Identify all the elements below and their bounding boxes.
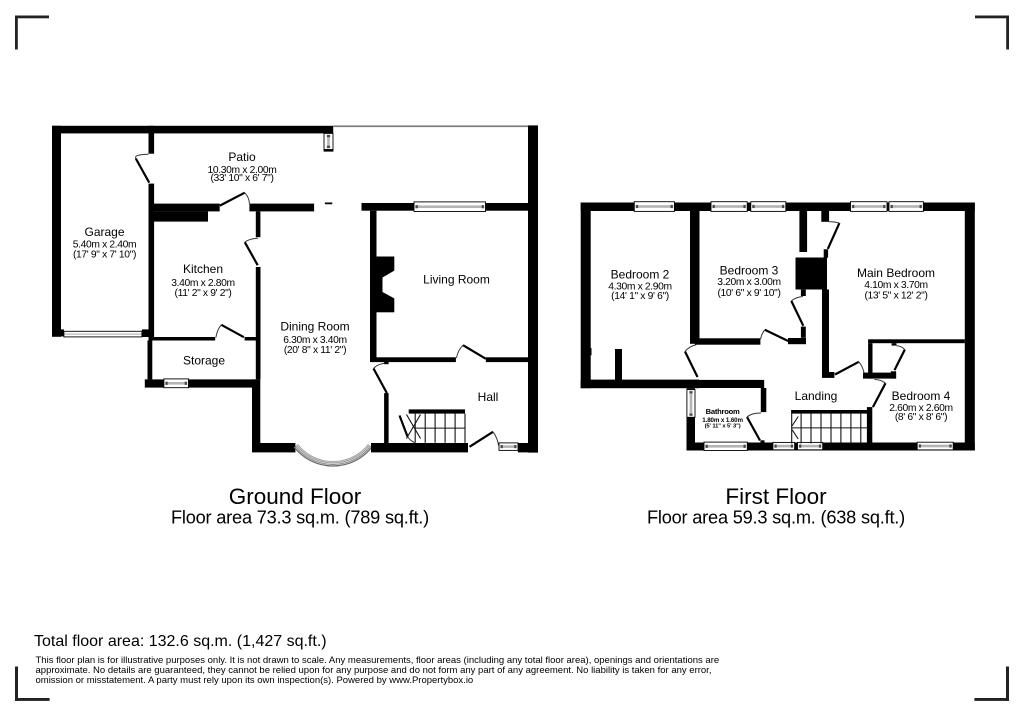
svg-text:(14' 1" x 9' 6"): (14' 1" x 9' 6") [611,291,669,302]
svg-text:(13' 5" x 12' 2"): (13' 5" x 12' 2") [864,290,927,301]
svg-text:(5' 11" x 5' 3"): (5' 11" x 5' 3") [705,423,741,429]
svg-text:(10' 6" x 9' 10"): (10' 6" x 9' 10") [717,288,780,299]
svg-text:Living Room: Living Room [423,273,490,287]
svg-text:Main Bedroom: Main Bedroom [857,266,935,280]
svg-text:Bedroom 4: Bedroom 4 [892,389,951,403]
svg-text:Garage: Garage [84,225,124,239]
svg-text:Bedroom 3: Bedroom 3 [720,264,779,278]
svg-text:Storage: Storage [183,354,225,368]
svg-text:(20' 8" x 11' 2"): (20' 8" x 11' 2") [284,345,346,356]
svg-text:Ground Floor: Ground Floor [229,484,362,509]
svg-text:Floor area 59.3 sq.m. (638 sq.: Floor area 59.3 sq.m. (638 sq.ft.) [647,508,905,528]
svg-text:Hall: Hall [478,390,499,404]
svg-text:Floor area 73.3 sq.m. (789 sq.: Floor area 73.3 sq.m. (789 sq.ft.) [171,508,429,528]
svg-text:First Floor: First Floor [725,484,827,509]
svg-text:3.20m x 3.00m: 3.20m x 3.00m [717,277,781,288]
svg-text:(33' 10" x 6' 7"): (33' 10" x 6' 7") [210,173,273,184]
svg-text:Landing: Landing [795,389,838,403]
svg-text:omission or misstatement. A pa: omission or misstatement. A party must r… [36,675,474,686]
svg-text:Total floor area: 132.6 sq.m.: Total floor area: 132.6 sq.m. (1,427 sq.… [34,633,327,650]
svg-text:Kitchen: Kitchen [183,262,223,276]
svg-text:Bathroom: Bathroom [706,407,740,416]
svg-text:Bedroom 2: Bedroom 2 [611,268,670,282]
svg-text:(8' 6" x 8' 6"): (8' 6" x 8' 6") [895,412,947,423]
svg-text:Dining Room: Dining Room [280,320,349,334]
svg-text:Patio: Patio [228,150,256,164]
svg-text:(11' 2" x 9' 2"): (11' 2" x 9' 2") [175,288,232,299]
svg-text:(17' 9" x 7' 10"): (17' 9" x 7' 10") [73,250,136,261]
